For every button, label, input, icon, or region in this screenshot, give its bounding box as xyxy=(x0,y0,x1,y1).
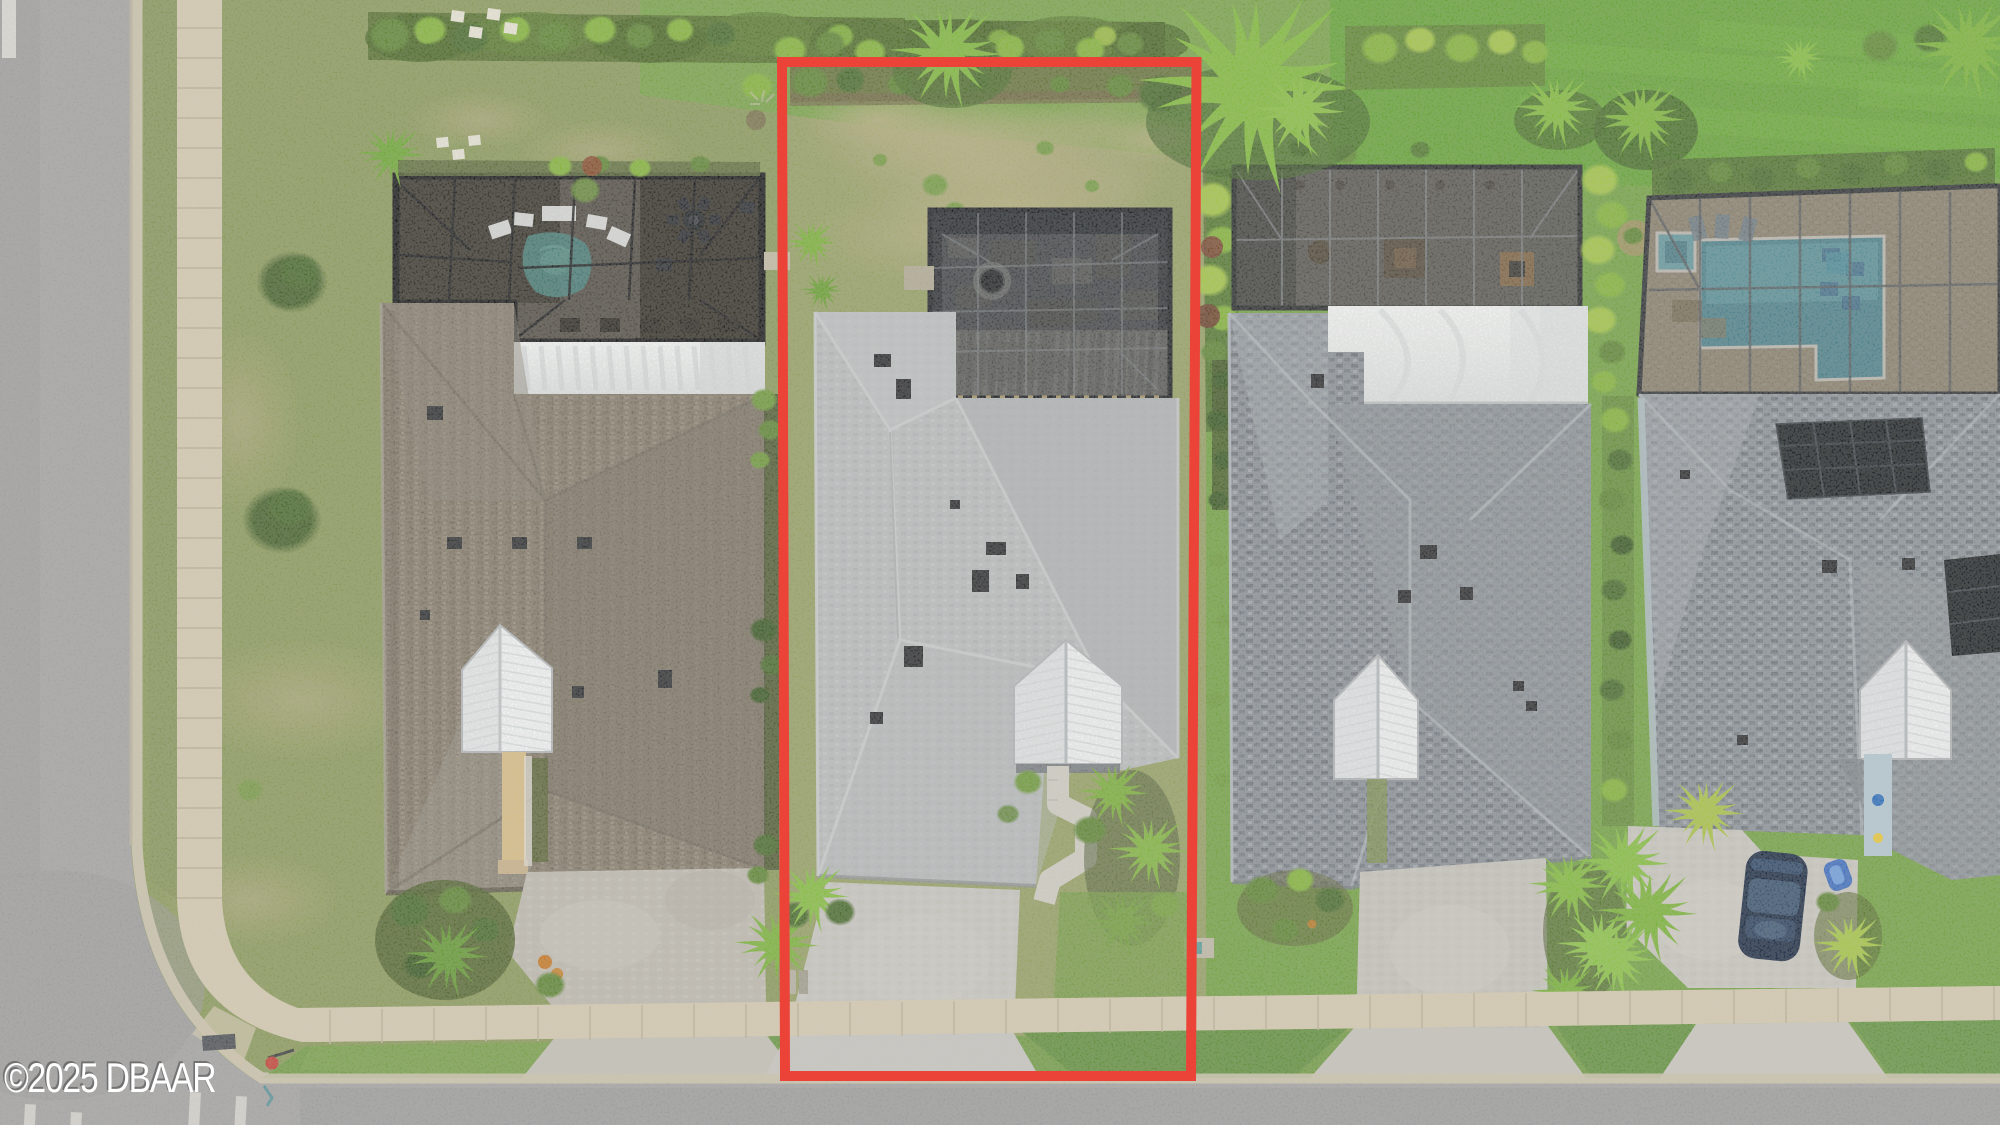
svg-text:©2025 DBAAR: ©2025 DBAAR xyxy=(4,1056,215,1102)
